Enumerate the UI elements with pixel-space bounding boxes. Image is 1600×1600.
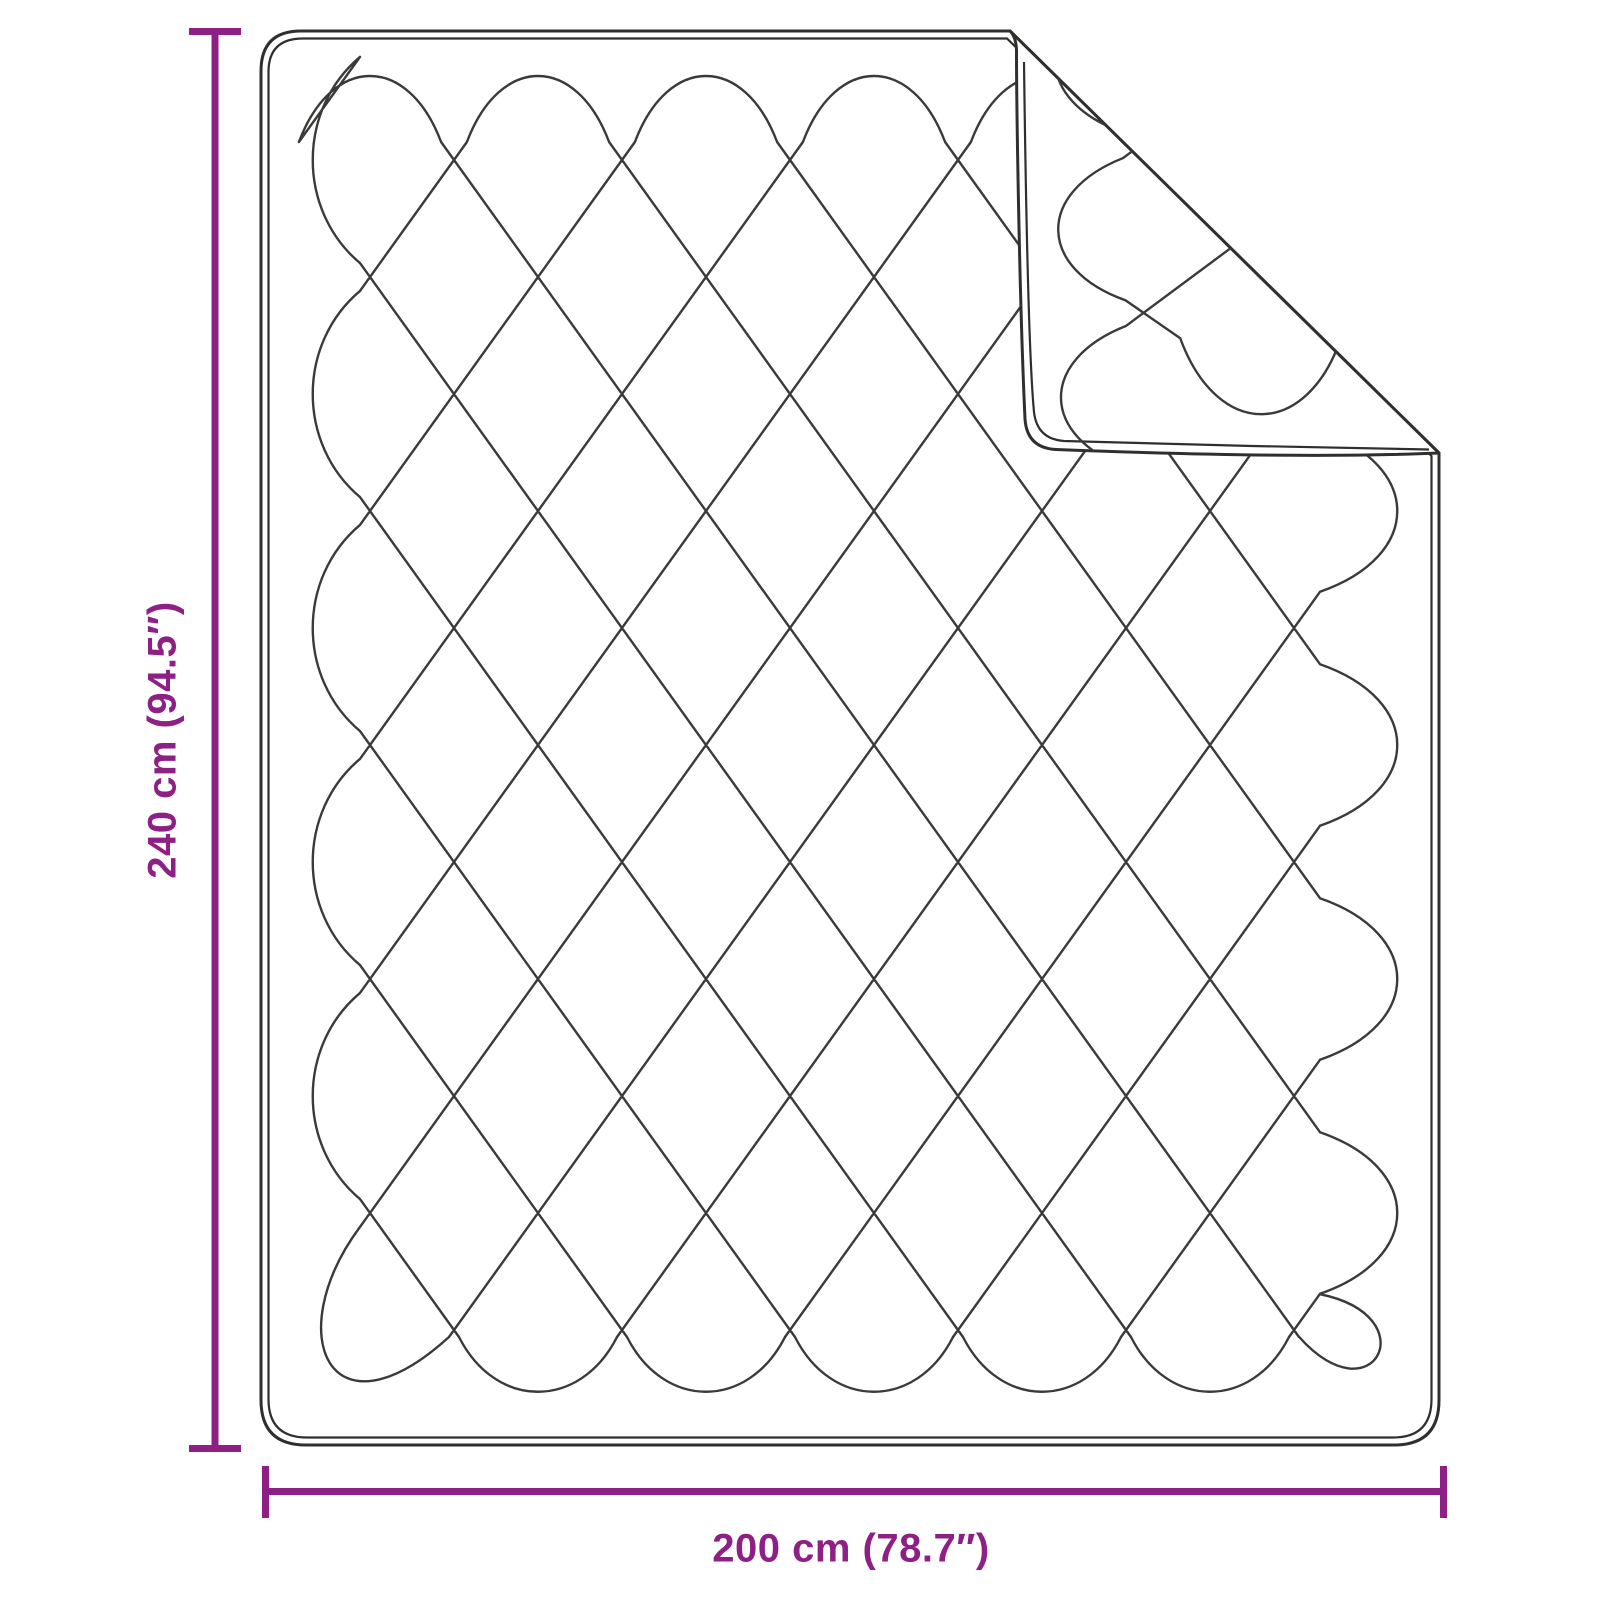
width-dimension-line xyxy=(262,1466,1447,1518)
blanket-illustration xyxy=(0,0,1600,1600)
height-dimension-line xyxy=(189,28,241,1452)
folded-corner-flap xyxy=(1010,31,1439,455)
width-dimension-label: 200 cm (78.7″) xyxy=(712,1527,989,1572)
product-dimension-diagram: 240 cm (94.5″) 200 cm (78.7″) xyxy=(0,0,1600,1600)
height-dimension-label: 240 cm (94.5″) xyxy=(141,601,186,878)
